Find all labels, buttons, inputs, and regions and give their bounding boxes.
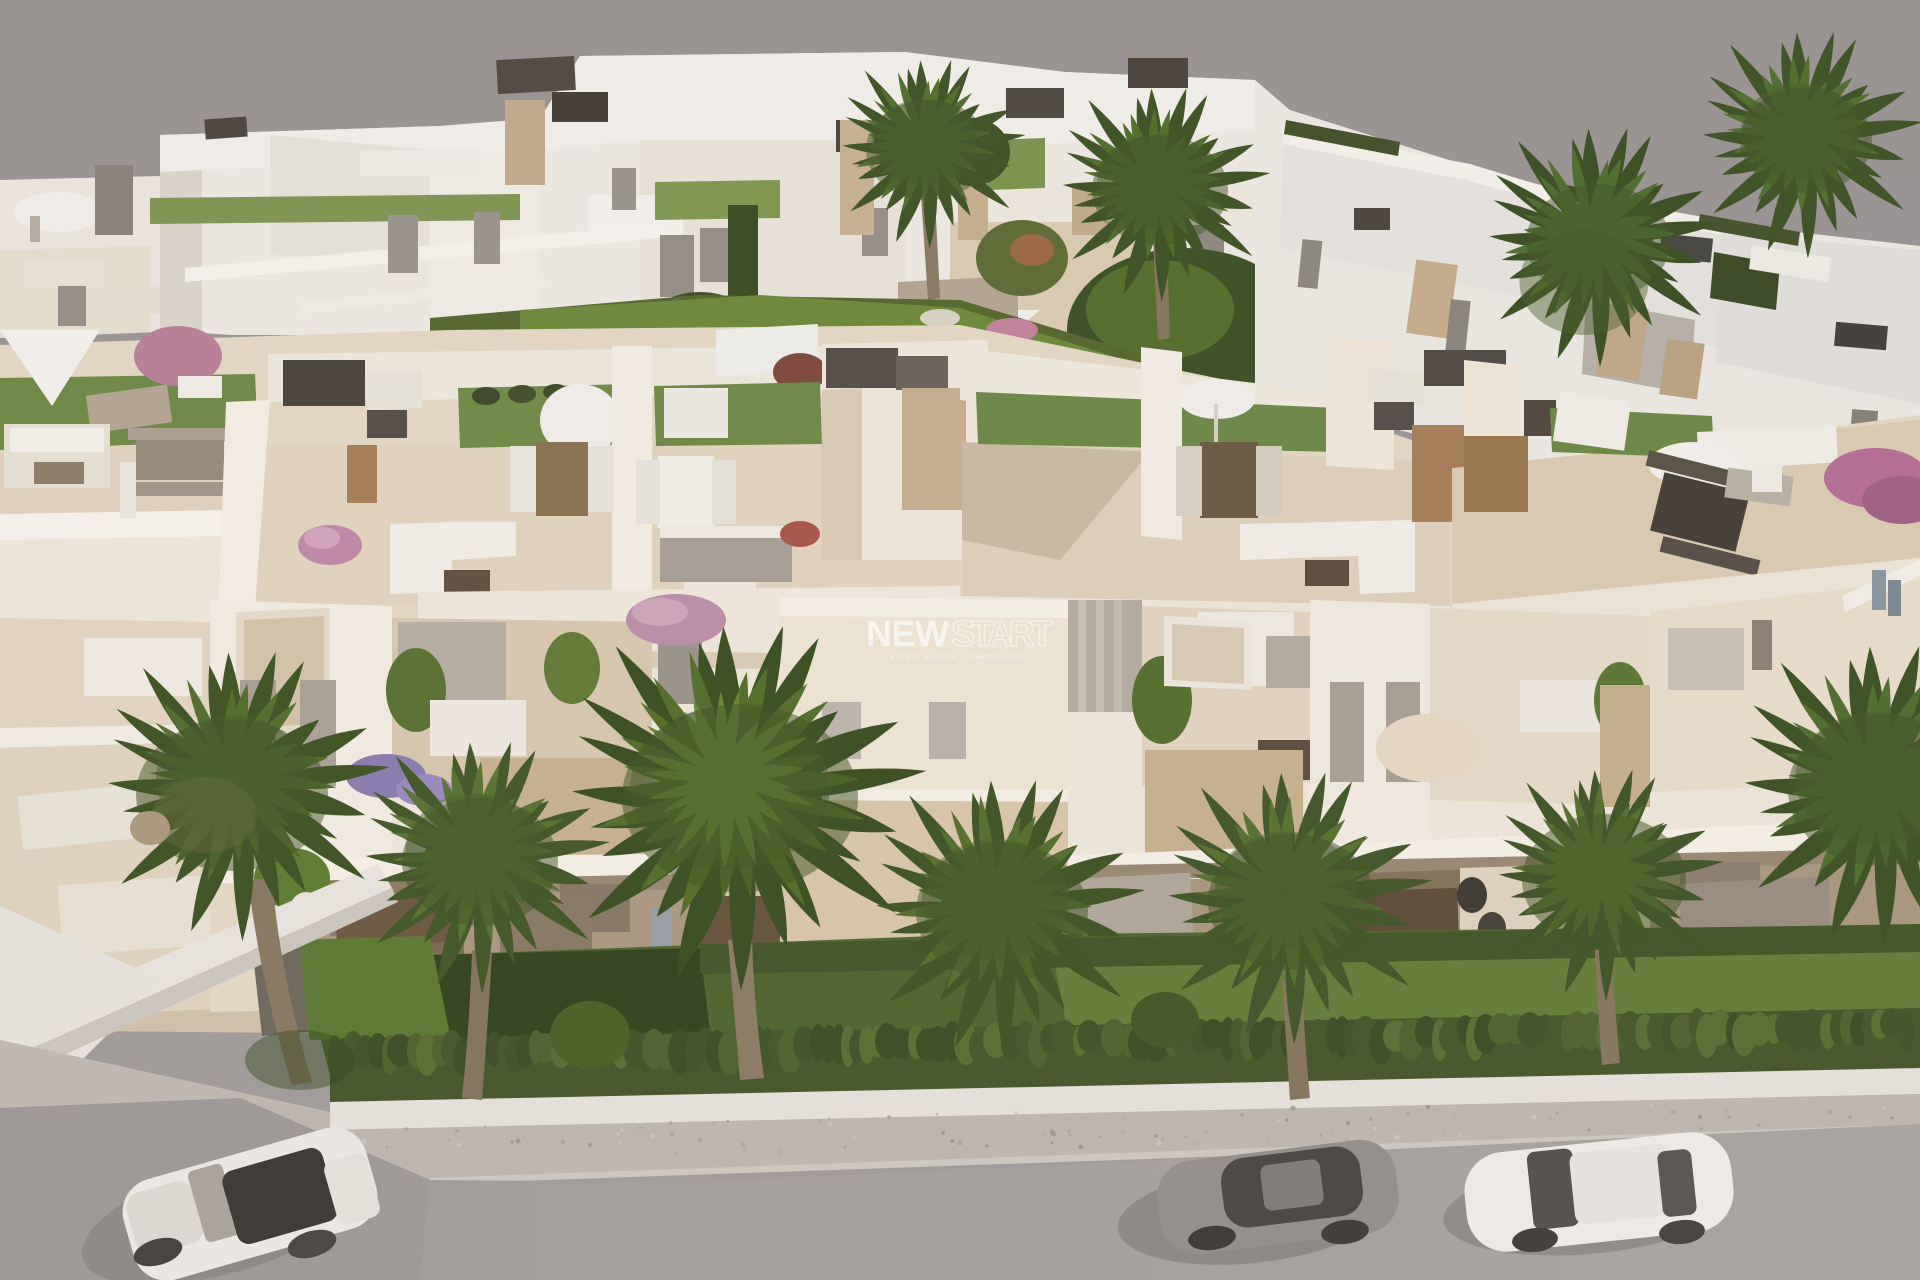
svg-text:NEW: NEW	[866, 613, 950, 654]
svg-text:— ESTATE AGENTS – INMOBILIARI: — ESTATE AGENTS – INMOBILIARIA —	[877, 654, 1039, 661]
svg-text:START: START	[951, 613, 1053, 654]
